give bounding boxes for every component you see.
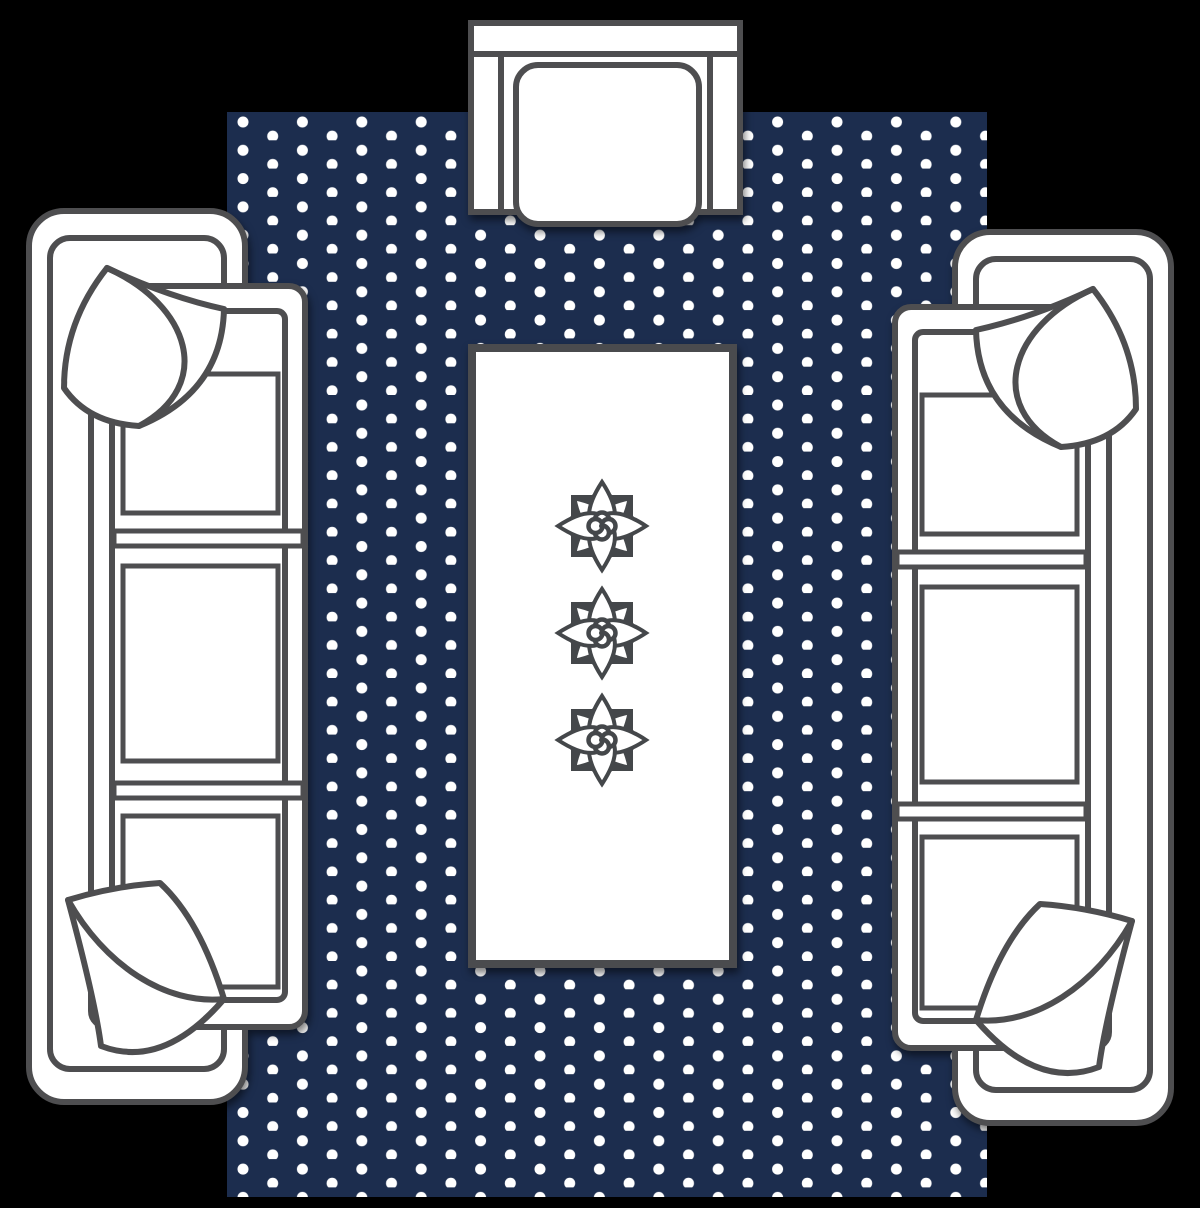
sofa-right-mirror-wrapper xyxy=(895,232,1171,1123)
sofa-left[interactable] xyxy=(29,211,305,1102)
table-flower-ornament-1 xyxy=(558,482,646,570)
armchair-top[interactable] xyxy=(468,23,743,224)
room-layout-canvas xyxy=(0,0,1200,1208)
sofa-right[interactable] xyxy=(895,232,1171,1123)
coffee-table[interactable] xyxy=(472,348,733,964)
table-flower-ornament-2 xyxy=(558,589,646,677)
table-flower-ornament-3 xyxy=(558,696,646,784)
armchair-cushion xyxy=(516,65,699,224)
